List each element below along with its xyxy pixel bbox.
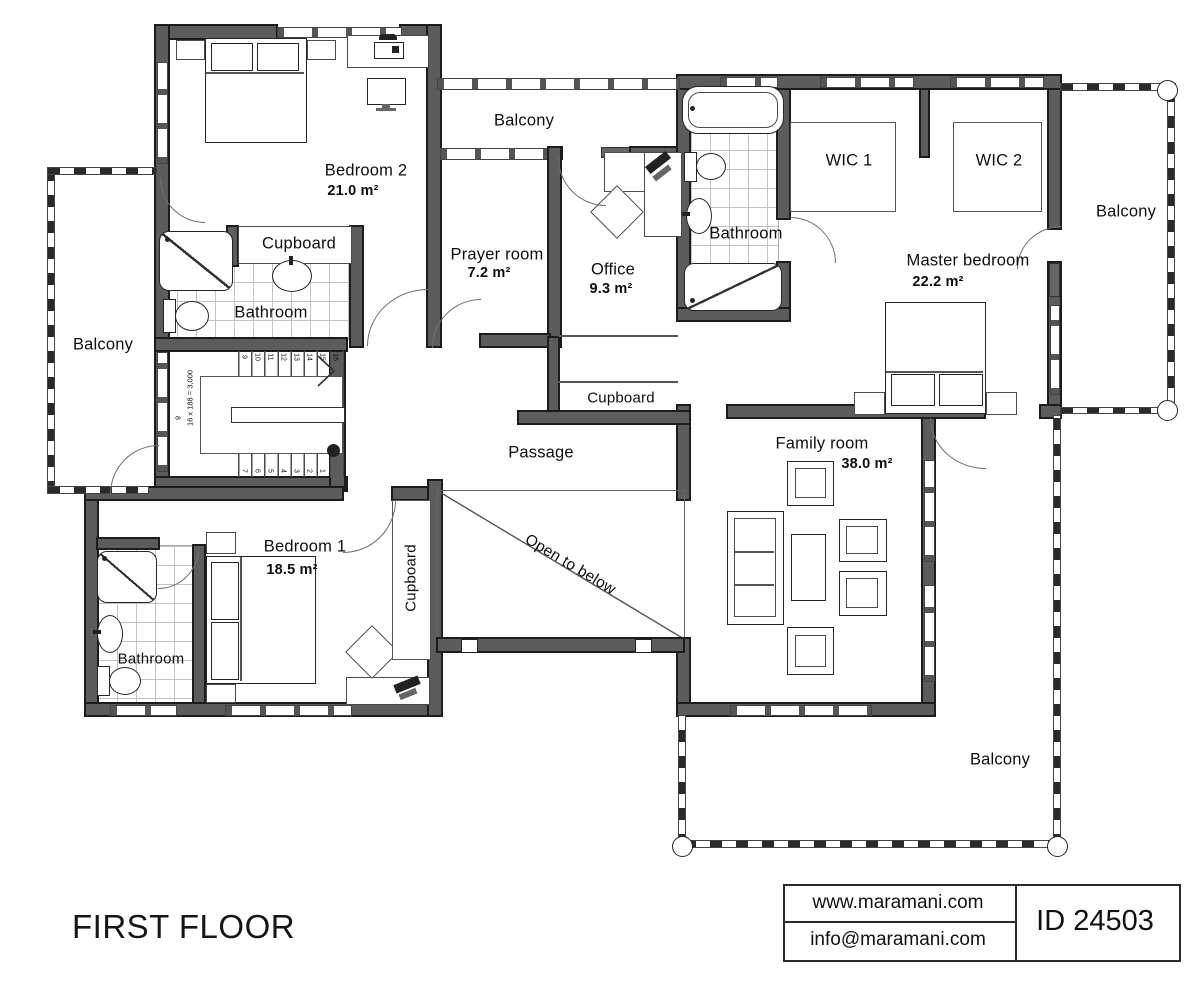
- faucet-icon: [682, 212, 690, 216]
- nightstand-icon: [206, 684, 236, 703]
- sink-icon: [97, 615, 123, 653]
- railing: [679, 716, 685, 846]
- shower-head: [165, 237, 170, 242]
- window: [110, 705, 177, 716]
- wall-segment: [1048, 89, 1061, 229]
- room-label-wic2: WIC 2: [976, 152, 1023, 171]
- bathtub-inner: [688, 92, 778, 128]
- room-label-passage: Passage: [508, 444, 574, 463]
- room-area-office: 9.3 m²: [589, 281, 632, 297]
- shower-icon: [684, 263, 782, 311]
- room-label-cupboard-bedroom1: Cupboard: [403, 544, 420, 611]
- blanket-line: [206, 72, 304, 74]
- wall-segment: [518, 411, 690, 424]
- coffee-table-icon: [791, 534, 826, 601]
- railing: [1168, 84, 1174, 414]
- pillow-icon: [211, 562, 239, 620]
- wall-segment: [193, 545, 205, 704]
- stair-number: 7: [241, 469, 248, 473]
- faucet-icon: [289, 256, 293, 265]
- room-label-balcony-top: Balcony: [494, 112, 554, 131]
- stair-number: 8: [174, 416, 181, 420]
- room-area-bedroom1: 18.5 m²: [266, 562, 317, 578]
- room-label-bedroom2: Bedroom 2: [325, 162, 408, 181]
- stair-number: 16: [332, 353, 339, 361]
- window: [157, 62, 168, 164]
- armchair-inner: [846, 578, 878, 608]
- railing: [48, 168, 54, 493]
- wall-segment: [548, 147, 561, 347]
- room-label-balcony-right: Balcony: [1096, 203, 1156, 222]
- wall-segment: [427, 25, 441, 347]
- sofa-seat-line: [735, 551, 774, 553]
- balcony-column: [1047, 836, 1068, 857]
- printer-icon: [374, 42, 404, 59]
- stair-dimension-note: 16 x 188 = 3,000: [186, 370, 195, 426]
- footer-email: info@maramani.com: [783, 921, 1013, 958]
- chair-inner: [795, 635, 826, 667]
- railing: [684, 841, 1056, 847]
- faucet-icon: [93, 630, 101, 634]
- wall-segment: [155, 25, 277, 39]
- room-label-bathroom-lower-left: Bathroom: [118, 651, 185, 668]
- stair-number: 13: [293, 353, 300, 361]
- chair-inner: [795, 468, 826, 498]
- footer-plan-id: ID 24503: [1013, 884, 1177, 958]
- stair-number: 2: [306, 469, 313, 473]
- floor-plan: 9 10 11 12 13 14 15 16 7 6 5 4 3 2 1 8 1…: [0, 0, 1200, 981]
- nightstand-icon: [176, 40, 205, 60]
- room-area-prayer-room: 7.2 m²: [467, 265, 510, 281]
- railing: [1061, 408, 1168, 413]
- room-label-family-room: Family room: [776, 435, 869, 454]
- railing: [437, 78, 680, 90]
- toilet-icon: [109, 667, 141, 695]
- stair-number: 11: [267, 353, 274, 360]
- door-arc: [367, 289, 428, 346]
- shower-head: [102, 556, 107, 561]
- room-label-balcony-bottom: Balcony: [970, 751, 1030, 770]
- stair-number: 4: [280, 469, 287, 473]
- footer-website: www.maramani.com: [783, 884, 1013, 921]
- wall-segment: [97, 538, 159, 549]
- pillow-icon: [891, 374, 935, 406]
- faucet-icon: [690, 106, 695, 111]
- room-label-prayer-room: Prayer room: [451, 246, 544, 265]
- stair-number: 1: [319, 469, 326, 473]
- wall-segment: [155, 338, 347, 351]
- sofa-inner: [734, 518, 776, 617]
- shower-icon: [159, 231, 233, 291]
- nightstand-icon: [854, 392, 885, 415]
- armchair-inner: [846, 526, 878, 554]
- nightstand-icon: [307, 40, 336, 60]
- room-label-master-bedroom: Master bedroom: [907, 252, 1030, 271]
- window: [924, 460, 935, 562]
- window: [820, 77, 914, 88]
- stair-number: 9: [241, 355, 248, 359]
- room-label-bathroom-top-right: Bathroom: [709, 225, 782, 244]
- cupboard-front-line: [558, 381, 678, 383]
- office-chair-icon: [345, 625, 399, 679]
- balcony-column: [1157, 400, 1178, 421]
- stair-number: 14: [306, 353, 313, 361]
- stair-number: 5: [267, 469, 274, 473]
- page-title: FIRST FLOOR: [72, 908, 295, 946]
- pillow-icon: [211, 622, 239, 680]
- stair-number: 15: [319, 353, 326, 361]
- stair-handrail: [231, 407, 345, 423]
- blanket-line: [886, 371, 983, 373]
- post-marker: [461, 639, 478, 653]
- blanket-line: [240, 557, 242, 681]
- stair-number: 12: [280, 353, 287, 361]
- wall-segment: [920, 89, 929, 157]
- toilet-icon: [175, 301, 209, 331]
- door-arc: [930, 418, 986, 469]
- stair-number: 6: [254, 469, 261, 473]
- sink-icon: [686, 198, 712, 234]
- balcony-column: [672, 836, 693, 857]
- pillow-icon: [257, 43, 299, 71]
- shower-head: [690, 298, 695, 303]
- stair-number: 3: [293, 469, 300, 473]
- monitor-icon: [367, 78, 406, 105]
- room-label-bedroom1: Bedroom 1: [264, 538, 347, 557]
- room-area-family-room: 38.0 m²: [841, 456, 892, 472]
- wall-segment: [480, 334, 550, 347]
- room-area-master-bedroom: 22.2 m²: [912, 274, 963, 290]
- sofa-seat-line: [735, 584, 774, 586]
- room-label-office: Office: [591, 261, 635, 280]
- railing: [1054, 416, 1060, 846]
- door-arc: [790, 217, 836, 263]
- window: [440, 148, 552, 160]
- door-arc: [343, 500, 396, 553]
- window: [730, 705, 872, 716]
- nightstand-icon: [986, 392, 1017, 415]
- window: [225, 705, 352, 716]
- printer-icon: [392, 46, 399, 53]
- window: [924, 585, 935, 682]
- pillow-icon: [211, 43, 253, 71]
- room-label-bathroom-upper-left: Bathroom: [234, 304, 307, 323]
- door-arc: [110, 445, 159, 494]
- window: [950, 77, 1044, 88]
- pillow-icon: [939, 374, 983, 406]
- printer-icon: [379, 34, 397, 40]
- monitor-stand: [376, 108, 396, 111]
- room-label-wic1: WIC 1: [826, 152, 873, 171]
- room-label-balcony-left: Balcony: [73, 336, 133, 355]
- stair-number: 10: [254, 353, 261, 361]
- stair-newel-post: [327, 444, 340, 457]
- balcony-column: [1157, 80, 1178, 101]
- nightstand-icon: [206, 532, 236, 554]
- toilet-icon: [696, 153, 726, 180]
- room-label-cupboard-top: Cupboard: [262, 235, 336, 254]
- window: [1050, 305, 1060, 395]
- cupboard-back-line: [558, 335, 678, 337]
- post-marker: [635, 639, 652, 653]
- door-arc: [558, 158, 606, 206]
- room-label-cupboard-middle: Cupboard: [587, 390, 654, 407]
- railing: [48, 168, 156, 174]
- room-area-bedroom2: 21.0 m²: [327, 183, 378, 199]
